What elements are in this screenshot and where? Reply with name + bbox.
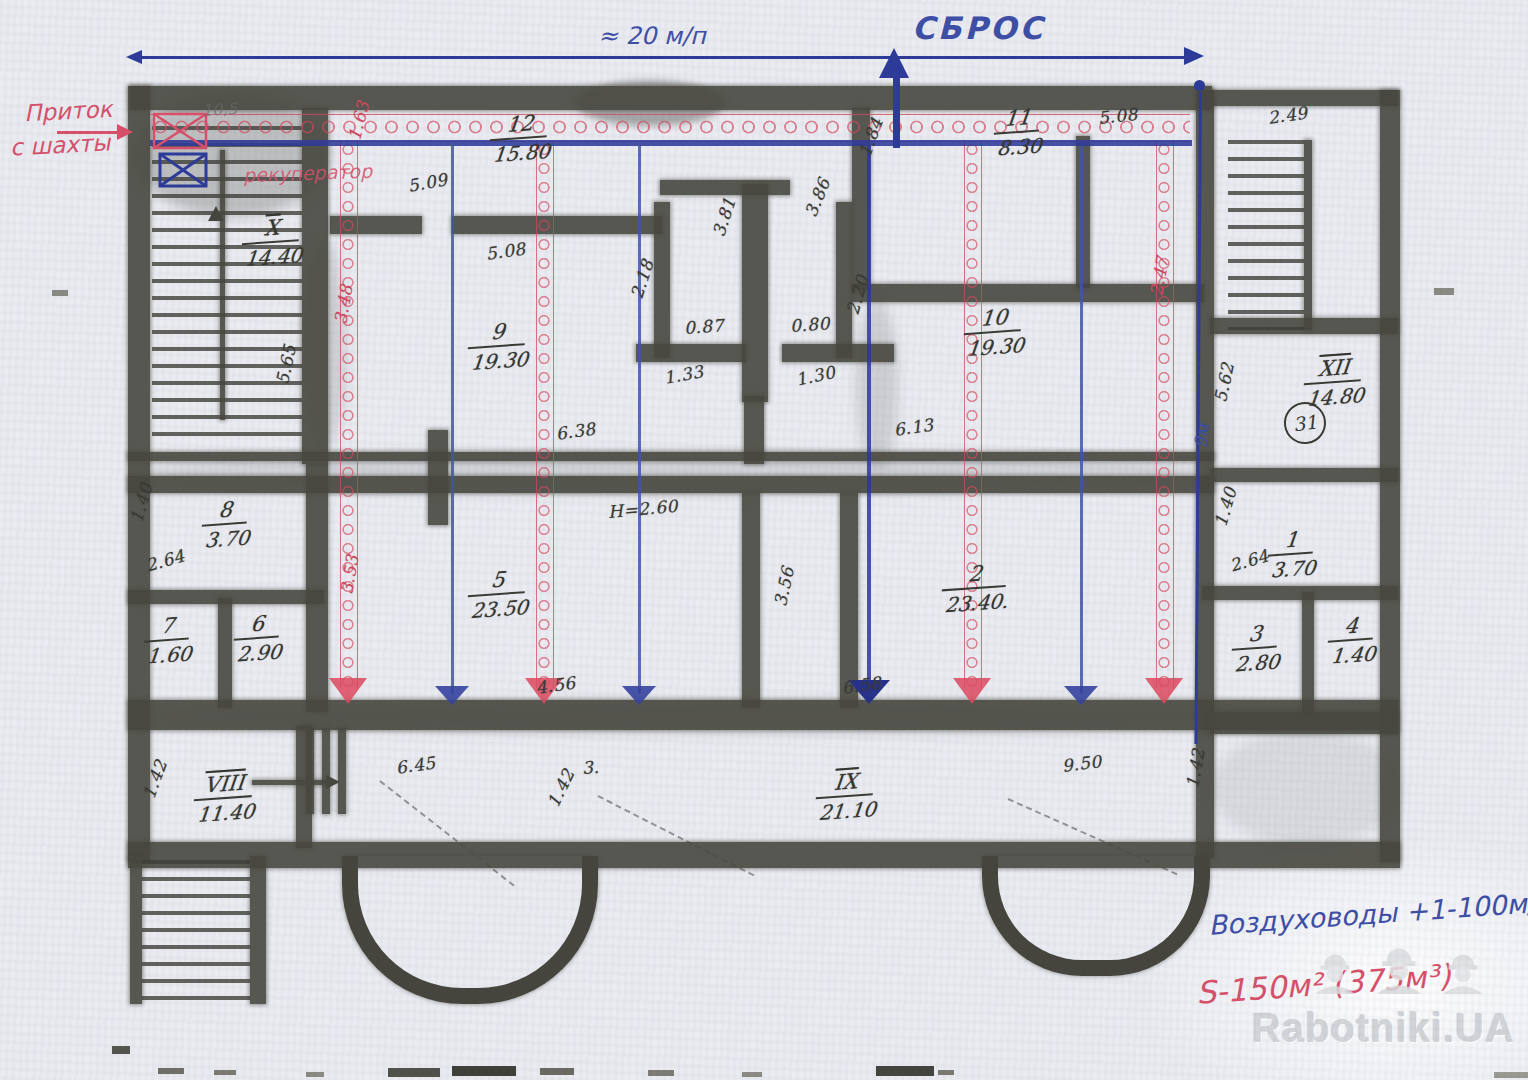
wall-segment	[128, 476, 1214, 493]
dimension-label: 9м	[1190, 422, 1213, 450]
room-area: 21.10	[818, 795, 878, 825]
wall-segment	[322, 728, 330, 814]
dimension-label: 3.56	[770, 565, 798, 608]
stair-direction-arrow	[208, 206, 224, 221]
duct-vertical-1	[340, 140, 358, 688]
duct-arrowhead	[953, 678, 991, 704]
scan-artifact	[648, 1070, 674, 1076]
room-number: 5	[468, 566, 528, 597]
arched-recess-left	[342, 856, 598, 1004]
dimension-label: 5.08	[1097, 104, 1139, 128]
dimension-label: 2.49	[1267, 103, 1309, 128]
top-measure-line	[140, 56, 1188, 59]
duct-arrowhead	[1145, 678, 1183, 704]
wall-segment	[306, 464, 328, 712]
dimension-label: 1.33	[662, 361, 705, 388]
duct-arrowhead	[329, 678, 367, 704]
scan-artifact	[158, 1068, 184, 1074]
room-number: IX	[816, 768, 876, 799]
scan-artifact	[876, 1066, 934, 1076]
supply-line-1	[451, 146, 454, 694]
dimension-label: 0.87	[683, 315, 724, 338]
wall-segment	[128, 452, 1214, 461]
wall-segment	[1202, 586, 1398, 600]
room-number: 10	[964, 304, 1024, 335]
scan-artifact	[388, 1068, 440, 1077]
top-length-note: ≈ 20 м/п	[598, 22, 706, 50]
dimension-label: 6.45	[395, 753, 437, 778]
room-label-3: 32.80	[1232, 621, 1280, 677]
room-area: 14.40	[244, 241, 304, 271]
drop-line-dot	[1194, 80, 1205, 91]
room-area: 19.30	[470, 345, 530, 375]
staircase-bottom-left	[142, 860, 250, 1002]
dimension-label: 5.08	[485, 239, 527, 264]
scan-artifact	[112, 1046, 130, 1054]
room-label-4: 41.40	[1328, 613, 1376, 669]
room-label-12: 1215.80	[490, 110, 551, 167]
room-number: 6	[234, 610, 281, 640]
room-number: XII	[1304, 354, 1364, 385]
room-area: 19.30	[966, 331, 1026, 361]
staircase-right	[1228, 140, 1304, 330]
wall-segment	[660, 180, 790, 195]
wall-segment	[1210, 468, 1398, 482]
room-number: 4	[1328, 612, 1375, 642]
room-label-X: X14.40	[242, 214, 303, 271]
scan-smudge	[1212, 730, 1402, 845]
scan-artifact	[452, 1066, 516, 1076]
duct-vertical-2	[536, 140, 554, 688]
watermark-brand: Rabotniki.UA	[1252, 1006, 1515, 1051]
wall-segment	[1076, 136, 1090, 288]
room-number: 8	[202, 496, 249, 526]
dimension-label: 9.50	[1061, 751, 1103, 776]
room-label-6: 62.90	[234, 611, 282, 667]
room-number: 9	[468, 318, 528, 349]
room-area: 8.30	[996, 131, 1043, 160]
wall-segment	[654, 202, 670, 358]
wall-segment	[130, 86, 1212, 110]
damper-symbol-red	[152, 112, 208, 150]
wall-segment	[250, 856, 266, 1004]
room-number: 7	[144, 612, 191, 642]
dimension-label: 2.64	[1227, 545, 1271, 575]
dimension-label: 1.30	[794, 362, 837, 390]
room-area: 2.80	[1234, 647, 1281, 676]
scan-artifact	[1494, 1072, 1528, 1078]
wall-segment	[128, 86, 150, 862]
dimension-label: 0.80	[789, 313, 830, 336]
room-area: 23.50	[470, 593, 530, 623]
room-label-XII: XII14.80	[1304, 354, 1365, 411]
room-label-11: 118.30	[994, 105, 1042, 161]
room-area: 11.40	[196, 797, 257, 827]
room-area: 23.40.	[944, 587, 1010, 618]
room-area: 15.80	[492, 137, 552, 167]
wall-segment	[1302, 592, 1314, 716]
sbros-note: СБРОС	[912, 10, 1045, 46]
room-number: VIII	[194, 770, 255, 801]
rekuperator-note: рекуператор	[243, 160, 373, 186]
floorplan-scan: ≈ 20 м/п СБРОС Приток с шахты рекуперато…	[0, 0, 1528, 1080]
scan-artifact	[52, 290, 68, 296]
wall-segment	[338, 728, 346, 814]
scan-artifact	[540, 1068, 574, 1075]
scan-artifact	[214, 1070, 236, 1075]
wall-segment	[452, 216, 662, 234]
supply-line-3	[867, 146, 871, 686]
scan-artifact	[1434, 288, 1454, 295]
room-label-2: 223.40.	[942, 560, 1009, 617]
wall-segment	[428, 430, 448, 525]
supply-arrowhead	[435, 686, 469, 705]
measure-arrowhead-left	[126, 50, 142, 64]
room-label-9: 919.30	[468, 318, 529, 375]
wall-segment	[636, 344, 746, 362]
pencil-note: 10,5	[202, 99, 239, 120]
room-label-IX: IX21.10	[816, 768, 877, 825]
supply-line-4	[1080, 146, 1083, 694]
room-number: 12	[490, 110, 550, 141]
dimension-label: 1.42	[543, 766, 578, 811]
room-area: 3.70	[1270, 553, 1317, 582]
room-area: 14.80	[1306, 381, 1366, 411]
supply-line-2	[638, 146, 641, 694]
dimension-label: 6.38	[555, 419, 597, 444]
exhaust-arrow-stem	[893, 76, 900, 148]
scan-smudge	[856, 300, 898, 470]
scan-artifact	[742, 1072, 762, 1077]
supply-arrowhead	[1064, 686, 1098, 705]
watermark-helmets-icon	[1308, 928, 1490, 998]
wall-segment	[252, 780, 330, 785]
room-area: 1.60	[146, 639, 193, 668]
room-area: 1.40	[1330, 639, 1377, 668]
room-label-1: 13.70	[1268, 527, 1316, 583]
wall-segment	[742, 493, 760, 708]
wall-segment	[306, 728, 314, 814]
room-area: 2.90	[236, 637, 283, 666]
dimension-label: 3.86	[801, 175, 834, 219]
scan-artifact	[306, 1072, 324, 1077]
room-number: X	[242, 214, 302, 245]
room-label-VIII: VIII11.40	[194, 770, 256, 827]
room-label-8: 83.70	[202, 497, 250, 553]
dimension-label: Н=2.60	[607, 496, 678, 522]
supply-arrowhead	[622, 686, 656, 705]
wall-segment	[742, 184, 768, 402]
duct-vertical-4	[1156, 140, 1174, 688]
wall-segment	[1210, 712, 1398, 734]
scan-artifact	[938, 1070, 954, 1075]
room-number: 1	[1268, 526, 1315, 556]
exhaust-arrowhead-up	[879, 48, 909, 78]
dimension-label: 1.40	[1210, 485, 1240, 529]
wall-segment	[836, 202, 852, 358]
door-arrow	[326, 775, 340, 789]
room-label-7: 71.60	[144, 613, 192, 669]
wall-segment	[218, 598, 232, 708]
inlet-arrowhead	[117, 124, 133, 140]
wall-segment	[130, 856, 142, 1004]
damper-symbol-blue	[158, 152, 208, 188]
pritok-note-line2: с шахты	[9, 129, 110, 160]
room-number: 3	[1232, 620, 1279, 650]
room-label-10: 1019.30	[964, 304, 1025, 361]
room-area: 3.70	[204, 523, 251, 552]
dimension-label: 3.81	[708, 195, 739, 239]
room-label-5: 523.50	[468, 566, 529, 623]
wall-segment	[782, 344, 894, 362]
dimension-label: 5.62	[1210, 361, 1238, 404]
wall-segment	[128, 700, 1398, 730]
wall-segment	[1304, 140, 1312, 330]
wall-segment	[220, 150, 225, 420]
dimension-label: 3.	[581, 757, 600, 778]
room-number: 11	[994, 104, 1041, 134]
pritok-note-line1: Приток	[23, 96, 112, 127]
measure-arrowhead-right	[1184, 47, 1204, 65]
dimension-label: 5.09	[406, 169, 449, 196]
dimension-label: 4.56	[535, 673, 577, 698]
dimension-label: 6.13	[893, 415, 935, 440]
